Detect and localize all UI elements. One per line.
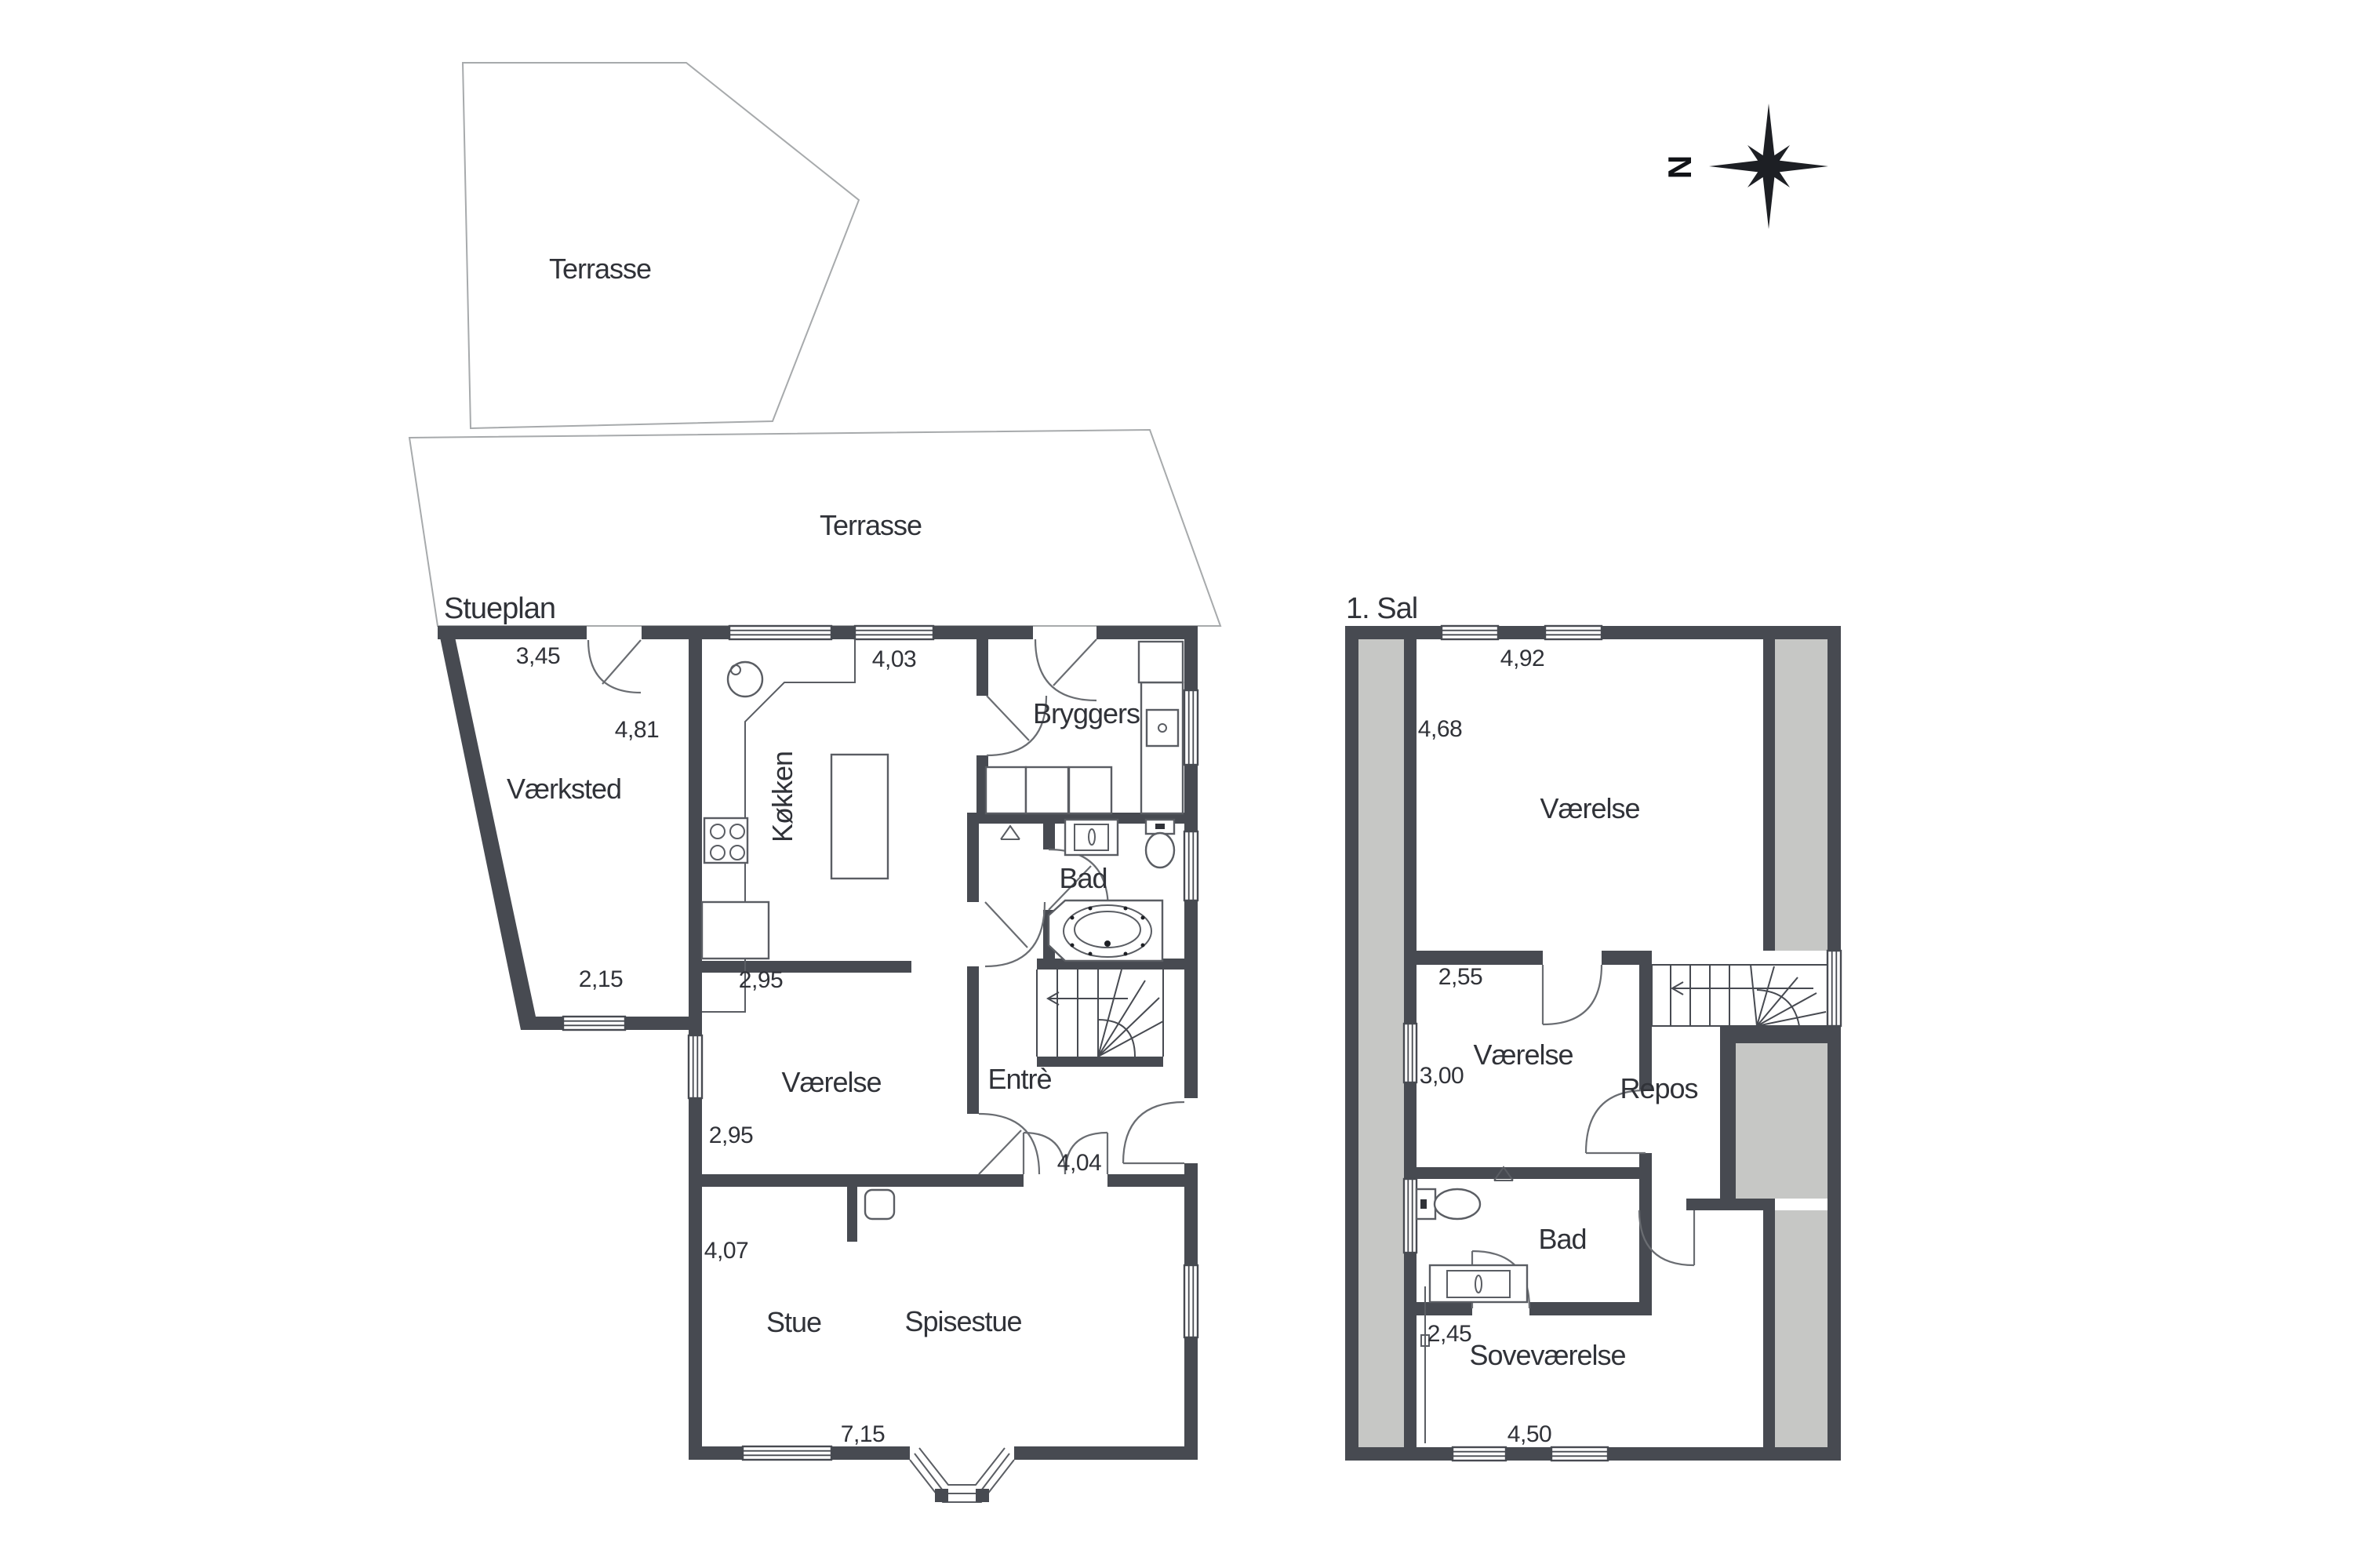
washing-machine-icon	[1147, 710, 1178, 746]
window-icon	[1404, 1179, 1417, 1253]
terrace-upper-outline	[463, 63, 859, 428]
terrace-upper-label: Terrasse	[549, 253, 651, 285]
door-arc-icon	[1035, 639, 1096, 700]
window-icon	[855, 626, 933, 639]
kitchen-island	[831, 755, 888, 879]
stairs-icon	[1652, 965, 1827, 1026]
loft-hatch-arrow-icon	[1001, 826, 1020, 839]
room-label-repos: Repos	[1620, 1072, 1697, 1104]
kitchen-cabinet	[702, 902, 769, 959]
bryggers-cabinet	[986, 767, 1026, 813]
room-label-koekken: Køkken	[766, 751, 798, 842]
door-arc-icon	[985, 902, 1045, 966]
window-icon	[1453, 1447, 1506, 1461]
window-icon	[1184, 690, 1198, 765]
kitchen-sink-icon	[728, 662, 762, 697]
floor-plan-page: Terrasse Terrasse N Stueplan	[0, 0, 2353, 1568]
ground-floor-title: Stueplan	[444, 592, 555, 625]
room-label-vaerelse: Værelse	[1473, 1039, 1573, 1071]
room-label-stue: Stue	[766, 1306, 821, 1338]
dimension-4-07: 4,07	[704, 1238, 748, 1264]
stove-icon	[704, 818, 747, 863]
room-label-vaerelse-stor: Værelse	[1540, 792, 1639, 824]
bath-sink-icon	[1065, 820, 1118, 855]
toilet-icon	[1417, 1189, 1480, 1219]
window-icon	[743, 1446, 831, 1460]
window-icon	[1184, 1265, 1198, 1337]
door-arc-icon	[979, 1114, 1039, 1174]
bath-sink-icon	[1430, 1265, 1527, 1302]
dimension-2-15: 2,15	[579, 966, 623, 992]
floor-plan-drawing: Terrasse Terrasse N Stueplan	[0, 0, 2353, 1568]
window-icon	[563, 1017, 625, 1030]
ground-floor-plan: Stueplan	[438, 592, 1198, 1502]
room-label-vaerksted: Værksted	[507, 773, 621, 805]
dimension-4-92: 4,92	[1500, 646, 1544, 671]
bryggers-cabinet	[1026, 767, 1068, 813]
bay-window-icon	[910, 1448, 1014, 1502]
dimension-4-68: 4,68	[1418, 716, 1462, 742]
first-fixtures	[1417, 1189, 1527, 1443]
window-icon	[1827, 951, 1841, 1026]
room-label-bryggers: Bryggers	[1033, 697, 1140, 729]
dimension-4-50: 4,50	[1507, 1421, 1551, 1447]
dimension-4-04: 4,04	[1057, 1150, 1101, 1176]
compass-north-label: N	[1661, 155, 1698, 179]
window-icon	[689, 1035, 702, 1098]
window-icon	[1545, 626, 1602, 639]
window-icon	[1442, 626, 1498, 639]
dimension-2-95-a: 2,95	[739, 967, 783, 993]
tall-cabinet	[1139, 642, 1183, 682]
room-label-sovevaerelse: Soveværelse	[1469, 1339, 1625, 1371]
wood-stove-icon	[865, 1190, 894, 1219]
dimension-2-45: 2,45	[1427, 1321, 1471, 1347]
room-label-spisestue: Spisestue	[904, 1305, 1021, 1337]
room-label-bad: Bad	[1538, 1223, 1586, 1255]
first-walls	[1345, 626, 1841, 1461]
window-icon	[1551, 1447, 1608, 1461]
first-floor-plan: 1. Sal	[1345, 592, 1841, 1461]
dimension-4-81: 4,81	[615, 717, 659, 743]
toilet-icon	[1146, 820, 1174, 868]
room-label-vaerelse: Værelse	[781, 1066, 881, 1098]
ground-labels: Værksted Køkken Bryggers Bad Entrè Værel…	[507, 643, 1140, 1447]
front-door-arc-icon	[1123, 1102, 1184, 1163]
terrace-outlines: Terrasse Terrasse	[409, 63, 1220, 626]
window-icon	[1404, 1024, 1417, 1082]
dimension-3-00: 3,00	[1420, 1063, 1464, 1089]
bryggers-counter	[1141, 682, 1183, 813]
stairs-icon	[1037, 970, 1163, 1057]
first-labels: Værelse Værelse Repos Bad Soveværelse 4,…	[1418, 646, 1698, 1447]
bathtub-icon	[1049, 900, 1162, 961]
dimension-2-95-b: 2,95	[709, 1122, 753, 1148]
dimension-7-15: 7,15	[841, 1421, 885, 1447]
first-doors	[1472, 965, 1694, 1308]
window-icon	[1184, 831, 1198, 900]
bryggers-cabinet	[1069, 767, 1111, 813]
window-icon	[729, 626, 831, 639]
dimension-4-03: 4,03	[872, 646, 916, 672]
terrace-lower-label: Terrasse	[820, 509, 922, 541]
door-arc-icon	[1543, 965, 1602, 1024]
compass-icon: N	[1661, 104, 1828, 229]
first-floor-title: 1. Sal	[1346, 592, 1417, 625]
room-label-bad: Bad	[1059, 862, 1107, 894]
room-label-entre: Entrè	[987, 1063, 1051, 1095]
dimension-3-45: 3,45	[516, 643, 560, 669]
dimension-2-55: 2,55	[1438, 964, 1482, 990]
door-arc-icon	[588, 640, 641, 693]
